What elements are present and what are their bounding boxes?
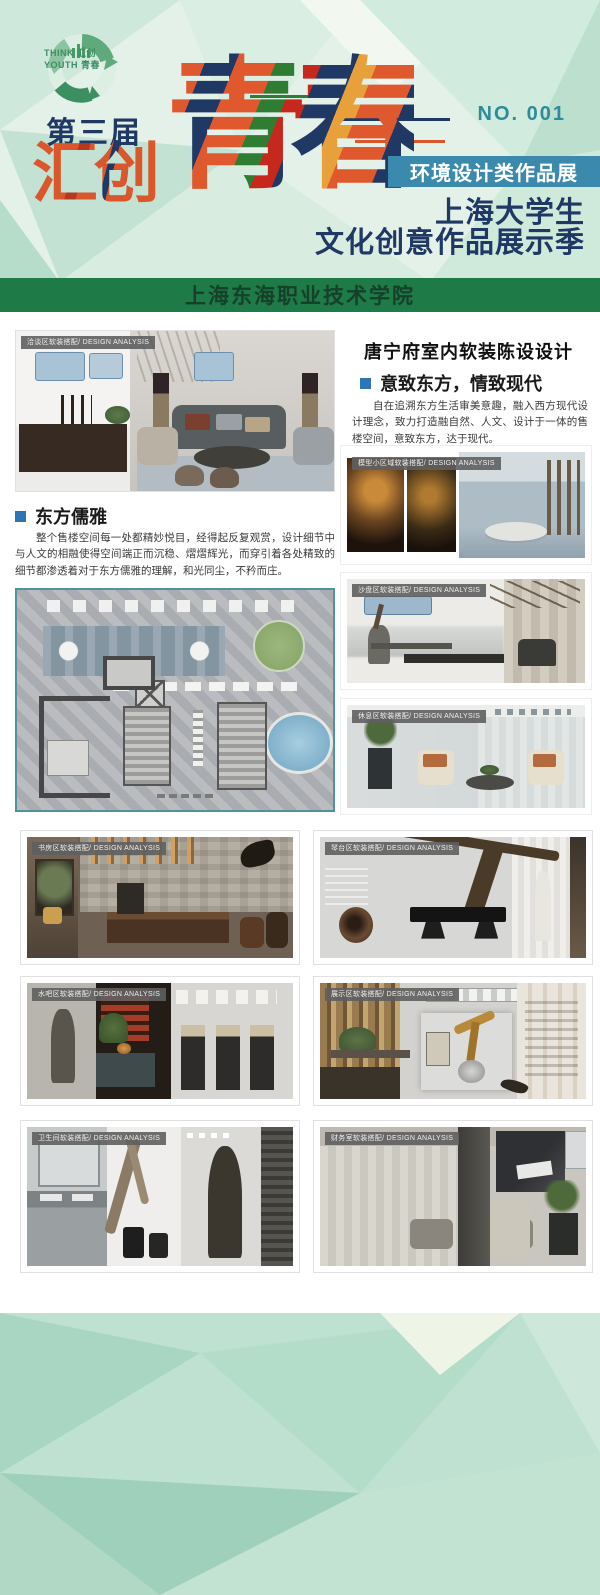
project-title: 唐宁府室内软装陈设设计: [345, 338, 592, 364]
collage: 洽谈区软装搭配/ DESIGN ANALYSIS: [16, 331, 334, 491]
photo-caption: 模型小区域软装搭配/ DESIGN ANALYSIS: [352, 457, 501, 470]
console-shape: [331, 1050, 411, 1058]
qin-table-shape: [410, 907, 506, 922]
basin-shape: [72, 1194, 93, 1201]
water-feature-ellipse: [265, 712, 333, 774]
issue-number: NO. 001: [478, 103, 566, 126]
photo-sandtable-area: 沙盘区软装搭配/ DESIGN ANALYSIS: [340, 572, 592, 690]
table-leg-shape: [421, 922, 445, 939]
collage: 展示区软装搭配/ DESIGN ANALYSIS: [320, 983, 586, 1099]
floor-plan: [15, 588, 335, 812]
table-leg-shape: [474, 922, 498, 939]
concept-heading: 意致东方，情致现代: [360, 370, 542, 396]
branch-shape: [490, 581, 580, 608]
collage: 卫生间软装搭配/ DESIGN ANALYSIS: [27, 1127, 293, 1266]
shutter-shape: [261, 1127, 293, 1266]
poster: THINK 汇创 YOUTH 青春 NO. 001 第三届 汇创 青春 环境设计…: [0, 0, 600, 1595]
wavy-path-shape: [157, 794, 217, 798]
concept-heading-text: 意致东方，情致现代: [380, 370, 542, 396]
stool-shape: [210, 467, 239, 488]
plant-shape: [99, 1013, 128, 1043]
photo-caption: 沙盘区软装搭配/ DESIGN ANALYSIS: [352, 584, 486, 597]
cushion-shape: [185, 414, 210, 430]
soap-bottle-shape: [149, 1233, 168, 1258]
floorplan-chip: [364, 596, 433, 616]
bench-shape: [371, 643, 452, 648]
photo-tea-room: 书房区软装搭配/ DESIGN ANALYSIS: [20, 830, 300, 965]
candles-shape: [61, 395, 93, 424]
bottom-polygon-background: [0, 1313, 600, 1595]
cushion-shape: [533, 754, 557, 766]
collage-block: [407, 458, 457, 551]
wall-shape: [103, 656, 155, 690]
armchair-shape: [137, 427, 178, 465]
logo-wordmark: THINK 汇创 YOUTH 青春: [44, 48, 100, 71]
pendant-lights-shape: [176, 990, 277, 1004]
stair-shape: [123, 706, 171, 786]
subtitle-line2: 文化创意作品展示季: [315, 219, 585, 261]
logo-line2: YOUTH 青春: [44, 60, 100, 72]
collage: 休息区软装搭配/ DESIGN ANALYSIS: [347, 705, 585, 808]
chair-shape: [518, 639, 556, 666]
collage: 琴台区软装搭配/ DESIGN ANALYSIS: [320, 837, 586, 958]
art-strip-shape: [570, 837, 586, 958]
brand-word-qingchun: 青春: [166, 52, 414, 201]
table-shape: [107, 912, 229, 943]
sideboard-shape: [19, 424, 127, 472]
photo-display-area: 展示区软装搭配/ DESIGN ANALYSIS: [313, 976, 593, 1106]
planter-shape: [549, 1213, 578, 1255]
partition-shape: [193, 710, 203, 766]
office-desk-shape: [47, 740, 89, 776]
cushion-shape: [423, 754, 447, 766]
photo-lounge-area: 休息区软装搭配/ DESIGN ANALYSIS: [340, 698, 592, 815]
screen-base-shape: [320, 1067, 400, 1099]
armchair-shape: [293, 427, 334, 465]
floorplan-chip: [194, 352, 234, 381]
photo-water-bar: 水吧区软装搭配/ DESIGN ANALYSIS: [20, 976, 300, 1106]
copper-ball-shape: [117, 1043, 130, 1053]
green-landscape-circle: [253, 620, 305, 672]
soap-bottle-shape: [123, 1227, 144, 1258]
photo-bathroom: 卫生间软装搭配/ DESIGN ANALYSIS: [20, 1120, 300, 1273]
photo-caption: 水吧区软装搭配/ DESIGN ANALYSIS: [32, 988, 166, 1001]
school-name-bar: 上海东海职业技术学院: [0, 278, 600, 312]
spec-list-shape: [325, 864, 368, 905]
cushion-shape: [216, 414, 241, 430]
ceiling-lights-shape: [187, 1133, 230, 1139]
bonsai-shape: [339, 1027, 376, 1053]
bar-stool-shape: [181, 1025, 205, 1090]
photo-caption: 卫生间软装搭配/ DESIGN ANALYSIS: [32, 1132, 166, 1145]
column-shape: [458, 1127, 490, 1266]
collage: 财务室软装搭配/ DESIGN ANALYSIS: [320, 1127, 586, 1266]
coffee-table-shape: [194, 446, 270, 468]
chair-shape: [117, 883, 144, 914]
photo-caption: 洽谈区软装搭配/ DESIGN ANALYSIS: [21, 336, 155, 349]
east-heading-text: 东方儒雅: [35, 503, 107, 529]
ceiling-lights-shape: [495, 709, 571, 715]
concept-body: 自在追溯东方生活审美意趣，融入西方现代设计理念，致力打造融自然、人文、设计于一体…: [352, 398, 588, 447]
photo-caption: 琴台区软装搭配/ DESIGN ANALYSIS: [325, 842, 459, 855]
bullet-square-icon: [15, 511, 26, 522]
stair-shape: [217, 702, 267, 790]
cushion-shape: [245, 417, 270, 431]
logo-line1: THINK 汇创: [44, 48, 100, 60]
floorplan-chip: [89, 353, 123, 379]
brand-word-huichuang: 汇创: [32, 140, 156, 206]
collage: 书房区软装搭配/ DESIGN ANALYSIS: [27, 837, 293, 958]
stone-drum-shape: [339, 907, 374, 943]
collage-block: [547, 460, 580, 534]
category-banner: 环境设计类作品展: [388, 156, 600, 187]
bar-stool-shape: [216, 1025, 240, 1090]
vase-shape: [458, 1060, 485, 1083]
stool-shape: [175, 465, 204, 486]
figure-shape: [51, 1009, 75, 1083]
floorplan-chip: [35, 352, 85, 381]
photo-caption: 财务室软装搭配/ DESIGN ANALYSIS: [325, 1132, 459, 1145]
sofa-shape: [410, 1219, 453, 1250]
photo-negotiation-collage: 洽谈区软装搭配/ DESIGN ANALYSIS: [15, 330, 335, 492]
photo-office-area: 财务室软装搭配/ DESIGN ANALYSIS: [313, 1120, 593, 1273]
photo-qin-area: 琴台区软装搭配/ DESIGN ANALYSIS: [313, 830, 593, 965]
photo-caption: 展示区软装搭配/ DESIGN ANALYSIS: [325, 988, 459, 1001]
photo-caption: 休息区软装搭配/ DESIGN ANALYSIS: [352, 710, 486, 723]
basin-shape: [40, 1194, 61, 1201]
ink-marks-shape: [525, 995, 578, 1076]
photo-model-area: 模型小区域软装搭配/ DESIGN ANALYSIS: [340, 445, 592, 565]
furniture-icon-strip: [47, 600, 297, 612]
east-heading: 东方儒雅: [15, 503, 107, 529]
floorplan-chip: [565, 1131, 586, 1169]
bonsai-shape: [105, 406, 130, 424]
collage: 沙盘区软装搭配/ DESIGN ANALYSIS: [347, 579, 585, 683]
gold-pot-shape: [43, 907, 62, 924]
bar-stool-shape: [250, 1025, 274, 1090]
bar-island-shape: [96, 1053, 155, 1088]
figure-shape: [535, 871, 551, 941]
collage-block: [347, 458, 404, 551]
bench-shape: [404, 654, 504, 663]
bullet-square-icon: [360, 378, 371, 389]
planter-shape: [368, 748, 392, 789]
east-body: 整个售楼空间每一处都精妙悦目，经得起反复观赏，设计细节中与人文的相融使得空间端正…: [15, 530, 335, 579]
stool-shape: [266, 912, 287, 948]
photo-caption: 书房区软装搭配/ DESIGN ANALYSIS: [32, 842, 166, 855]
chair-shape: [490, 1199, 530, 1255]
reception-desk-shape: [485, 522, 547, 541]
figure-shape: [208, 1146, 243, 1257]
stool-shape: [240, 917, 264, 948]
collage: 水吧区软装搭配/ DESIGN ANALYSIS: [27, 983, 293, 1099]
collage: 模型小区域软装搭配/ DESIGN ANALYSIS: [347, 452, 585, 558]
lantern-shape: [426, 1032, 449, 1066]
